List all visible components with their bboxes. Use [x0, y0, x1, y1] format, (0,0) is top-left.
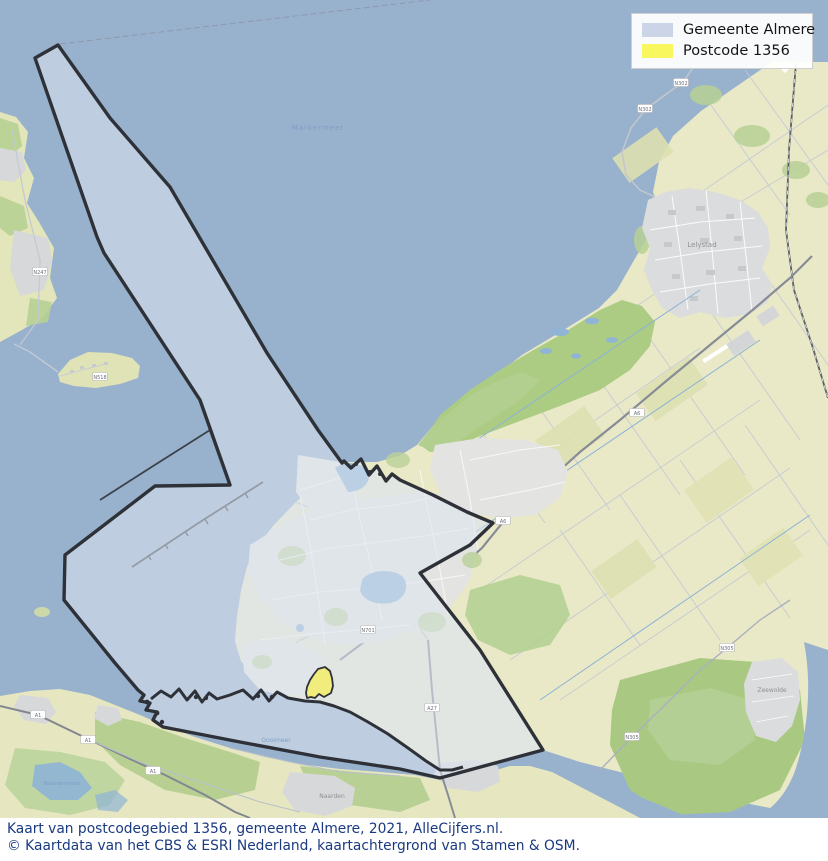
- legend-row-gemeente: Gemeente Almere: [642, 19, 804, 40]
- road-shield: A1: [81, 736, 96, 744]
- svg-text:A1: A1: [150, 769, 157, 775]
- lelystad-label: Lelystad: [687, 241, 716, 249]
- road-shield: N305: [720, 644, 735, 652]
- svg-text:N302: N302: [638, 107, 651, 113]
- svg-text:N518: N518: [93, 375, 106, 381]
- caption-attribution: © Kaartdata van het CBS & ESRI Nederland…: [7, 838, 828, 855]
- pampus-island: [34, 607, 50, 617]
- road-shield: N701: [361, 626, 376, 634]
- caption-title: Kaart van postcodegebied 1356, gemeente …: [7, 821, 828, 838]
- markermeer-label: Markermeer: [292, 124, 344, 132]
- legend: Gemeente Almere Postcode 1356: [631, 13, 813, 69]
- naardermeer-label: Naardermeer: [44, 781, 81, 787]
- road-shield: A1: [146, 767, 161, 775]
- postcode-1356-swatch: [642, 44, 673, 58]
- road-shield: A1: [31, 711, 46, 719]
- map-canvas[interactable]: N247 N518 N302 N302 A6 A6 A27 A1 A1 A1 N…: [0, 0, 828, 818]
- caption: Kaart van postcodegebied 1356, gemeente …: [0, 818, 828, 861]
- legend-row-postcode: Postcode 1356: [642, 40, 804, 61]
- road-shield: N518: [93, 373, 108, 381]
- svg-text:N701: N701: [361, 628, 374, 634]
- naarden-label: Naarden: [319, 793, 345, 800]
- svg-text:N305: N305: [625, 735, 638, 741]
- svg-text:A6: A6: [500, 519, 507, 525]
- road-shield: N302: [638, 105, 653, 113]
- road-shield: N302: [674, 79, 689, 87]
- road-shield: N305: [625, 733, 640, 741]
- svg-text:N247: N247: [33, 270, 46, 276]
- map-screenshot: { "legend": { "items": [ {"label": "Geme…: [0, 0, 828, 861]
- road-shield: N247: [33, 268, 48, 276]
- road-shield: A6: [630, 409, 645, 417]
- svg-text:A1: A1: [35, 713, 42, 719]
- svg-text:A1: A1: [85, 738, 92, 744]
- zeewolde-label: Zeewolde: [757, 687, 787, 694]
- svg-text:N302: N302: [674, 81, 687, 87]
- road-shield: A27: [425, 704, 440, 712]
- gemeente-almere-swatch: [642, 23, 673, 37]
- road-shield: A6: [496, 517, 511, 525]
- svg-text:A27: A27: [427, 706, 437, 712]
- svg-text:A6: A6: [634, 411, 641, 417]
- legend-label-postcode: Postcode 1356: [683, 43, 790, 59]
- svg-text:N305: N305: [720, 646, 733, 652]
- legend-label-gemeente: Gemeente Almere: [683, 22, 815, 38]
- gooimeer-label: Gooimeer: [261, 737, 291, 744]
